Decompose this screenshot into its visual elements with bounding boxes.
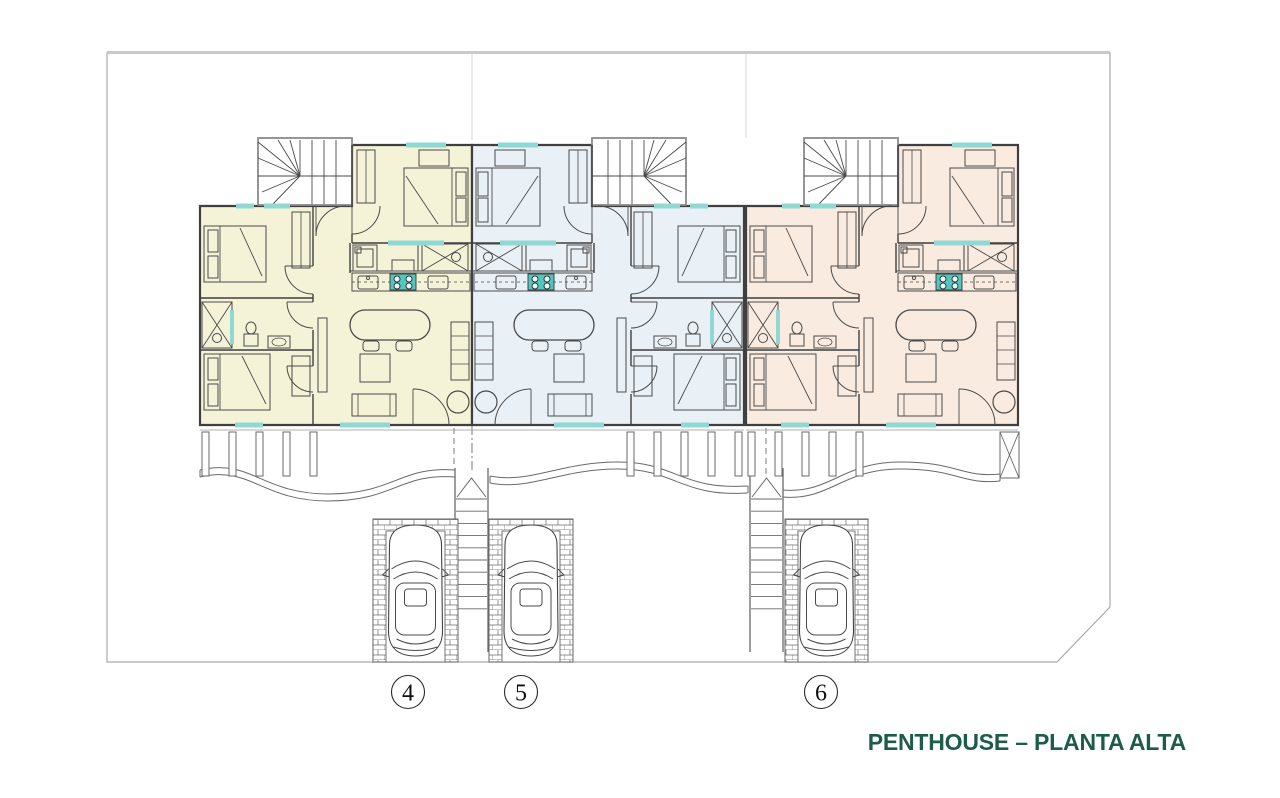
parking-space-5 [489,519,573,662]
unit-6-floorplan [746,138,1018,476]
penthouse-units [200,138,1018,476]
unit-4-floorplan [200,138,472,476]
unit-number-4: 4 [402,681,414,707]
floorplan-page: 4 5 6 PENTHOUSE – PLANTA ALTA [0,0,1280,798]
unit-number-6: 6 [815,681,827,707]
parking-space-6 [785,519,868,662]
unit-number-5: 5 [515,681,527,707]
plan-title: PENTHOUSE – PLANTA ALTA [868,729,1186,756]
unit-label-5: 5 [505,676,538,709]
unit-label-4: 4 [392,676,425,709]
unit-label-6: 6 [805,676,838,709]
ground-level-elements [200,425,1019,662]
parking-space-4 [373,519,458,662]
unit-5-floorplan [472,138,744,476]
site-plan-canvas: 4 5 6 [0,0,1280,798]
